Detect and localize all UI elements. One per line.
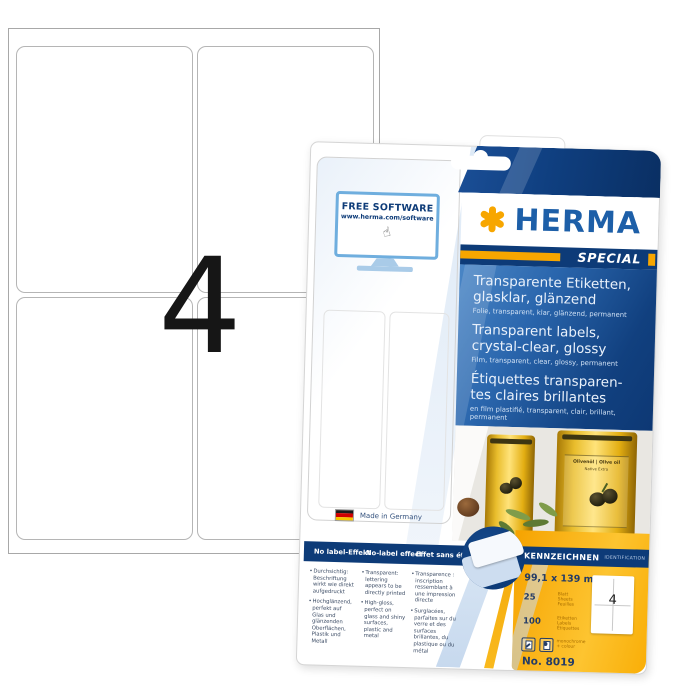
olive-graphic [510, 477, 522, 489]
description-en: Transparent labels, crystal-clear, gloss… [471, 315, 655, 369]
desc-fr-sub: en film plastifié, transparent, clair, b… [470, 405, 630, 425]
mini-sheet-count: 4 [591, 592, 633, 608]
bottle-label-sub: Native Extra [564, 465, 628, 472]
desc-de-line2: glasklar, glänzend [473, 288, 597, 307]
feature-column-fr: Transparence : inscription ressemblant à… [409, 571, 461, 659]
band-sheen [494, 146, 576, 195]
unit-feuilles: Feuilles [557, 603, 574, 609]
herma-logo: HERMA [461, 192, 659, 249]
category-label: KENNZEICHNEN [524, 551, 600, 562]
unit-etiquettes: Étiquettes [557, 627, 580, 633]
description-de: Transparente Etiketten, glasklar, glänze… [473, 265, 657, 320]
special-label: SPECIAL [577, 250, 641, 267]
labels-units: Etiketten Labels Étiquettes [557, 616, 580, 632]
click-hand-icon: ☝ [382, 225, 392, 241]
printer-colour-icon [539, 638, 553, 652]
monitor-base [357, 266, 413, 273]
category-band: KENNZEICHNEN IDENTIFICATION [515, 546, 649, 568]
made-in-text: Made in Germany [360, 512, 422, 522]
feature-bullet: Transparence : inscription ressemblant à… [410, 571, 461, 605]
feature-header-en: No-label effect [366, 549, 422, 559]
free-software-url: www.herma.com/software [338, 213, 436, 223]
feature-header-de: No label-Effekt [314, 547, 371, 557]
made-in-germany: Made in Germany [335, 509, 422, 523]
desc-en-line2: crystal-clear, glossy [472, 337, 607, 357]
inner-sheet-outline [318, 310, 386, 510]
category-label-sub: IDENTIFICATION [604, 555, 645, 561]
package-top-band [458, 145, 661, 198]
feature-bullet: High-gloss, perfect on glass and shiny s… [359, 600, 406, 641]
euro-hang-slot [451, 155, 511, 171]
inner-sheet-outline [384, 311, 450, 511]
description-fr: Étiquettes transparen- tes claires brill… [470, 364, 655, 426]
bottle-cap [490, 438, 532, 444]
product-number: No. 8019 [522, 655, 575, 668]
nutmeg-graphic [457, 497, 480, 517]
feature-bullet: Hochglänzend, perfekt auf Glas und glänz… [307, 599, 354, 646]
labels-per-sheet-count: 4 [140, 237, 260, 377]
feature-column-de: Durchsichtig: Beschriftung wirkt wie dir… [307, 568, 355, 650]
special-stripe-tab [648, 254, 655, 266]
free-software-badge: FREE SOFTWARE www.herma.com/software ☝ [334, 191, 438, 274]
printer-compat-icons [521, 637, 553, 652]
feature-bullet: Transparent: lettering appears to be dir… [361, 570, 408, 598]
germany-flag-icon [335, 509, 354, 522]
desc-fr-line2: tes claires brillantes [470, 386, 606, 406]
feature-bullet: Durchsichtig: Beschriftung wirkt wie dir… [309, 568, 356, 596]
sheets-count: 25 [524, 592, 536, 602]
brand-panel: HERMA SPECIAL Transparente Etiketten, gl… [452, 192, 659, 545]
product-package: FREE SOFTWARE www.herma.com/software ☝ H… [296, 141, 661, 675]
transparent-bottle-label: Olivenöl | Olive oil Native Extra [563, 454, 629, 528]
olive-oil-bottle-large: Olivenöl | Olive oil Native Extra [554, 430, 637, 546]
print-note: monochrome + colour [556, 639, 585, 650]
feature-column-en: Transparent: lettering appears to be dir… [359, 570, 407, 645]
mini-sheet-diagram: 4 [591, 575, 635, 634]
product-descriptions: Transparente Etiketten, glasklar, glänze… [456, 264, 657, 430]
special-stripe [460, 250, 560, 261]
olive-graphic [602, 489, 617, 504]
printer-mono-icon [521, 637, 535, 651]
herma-asterisk-icon [478, 205, 507, 234]
print-note-line2: + colour [556, 644, 585, 650]
sheets-units: Blatt Sheets Feuilles [557, 592, 574, 608]
labels-count: 100 [523, 616, 541, 626]
brand-name: HERMA [514, 202, 642, 241]
feature-bullet: Surglacées, parfaites sur du verre et de… [409, 608, 460, 656]
monitor-icon: FREE SOFTWARE www.herma.com/software ☝ [334, 191, 440, 260]
spec-panel: KENNZEICHNEN IDENTIFICATION 99,1 x 139 m… [512, 530, 650, 674]
bottle-cap [562, 434, 633, 441]
